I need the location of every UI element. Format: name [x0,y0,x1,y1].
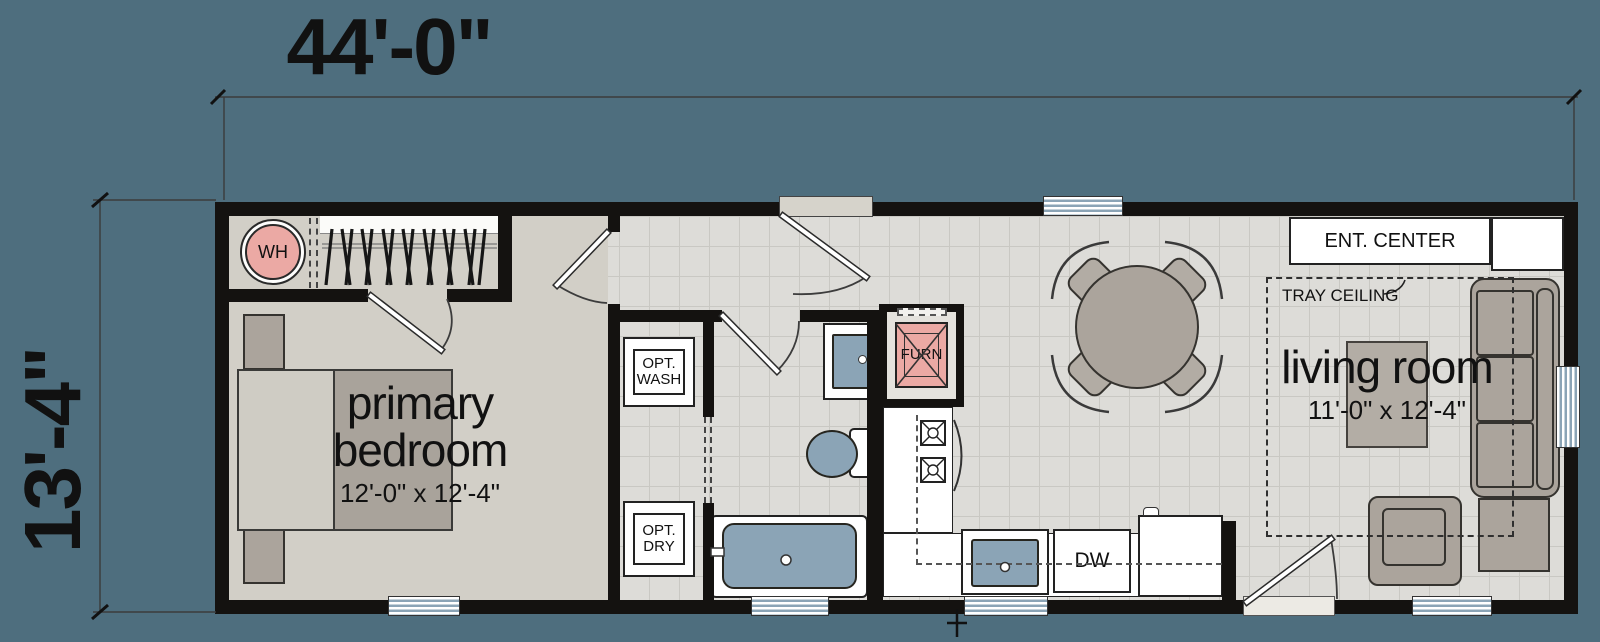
wall-bath-kitchen [867,310,883,600]
entertainment-center: ENT. CENTER [1289,217,1491,265]
window-top-dining [1043,196,1123,216]
ent-center-label: ENT. CENTER [1324,231,1455,252]
window-bottom-kitchen [964,596,1048,616]
upper-cabinet-dashed-line-vertical [916,415,918,565]
refrigerator-handle [1143,507,1159,516]
window-bottom-bedroom [388,596,460,616]
water-heater: WH [240,219,306,285]
opt-dry-line2: DRY [643,538,674,555]
living-room-name: living room [1262,344,1512,391]
sofa-back [1536,288,1554,490]
water-heater-closet-dashed-partition [309,218,311,288]
floor-plan-canvas: WH OPT.WASH OPT.DRY FURN DW [0,0,1600,642]
corner-cabinet [1491,217,1564,271]
laundry-closet-dashed-front [704,417,706,503]
primary-bedroom-label: primary bedroom 12'-0" x 12'-4" [300,380,540,509]
living-room-size: 11'-0" x 12'-4" [1262,395,1512,426]
vanity-knob [858,355,867,364]
optional-washer-label-box: OPT.WASH [633,349,685,395]
living-room-label: living room 11'-0" x 12'-4" [1262,344,1512,426]
nightstand [243,528,285,584]
water-heater-closet-dashed-partition-2 [316,218,318,288]
wall-closet-bottom-left [229,289,368,302]
optional-dryer-label-box: OPT.DRY [633,513,685,565]
dishwasher-label: DW [1075,550,1110,572]
wall-bedroom-stub [608,216,620,232]
window-bottom-living [1412,596,1492,616]
bathtub-basin [722,523,857,589]
window-right-living [1556,366,1580,448]
wall-closet-bottom-right [447,289,512,302]
wall-laundry-divider-upper [703,322,714,417]
wall-entry-stub [1222,521,1236,600]
front-door-alcove [779,196,873,217]
dimension-width-label: 44'-0" [234,2,544,92]
upper-cabinet-dashed-line-horizontal [916,563,1222,565]
closet-shelf [320,216,498,234]
tray-ceiling-label: TRAY CEILING [1282,286,1402,306]
toilet-bowl [806,430,858,478]
nightstand [243,314,285,370]
opt-dry-line1: OPT. [642,522,675,539]
window-bottom-bathroom [751,596,829,616]
dining-table [1075,265,1199,389]
wall-bedroom [608,304,620,600]
primary-bedroom-size: 12'-0" x 12'-4" [300,478,540,509]
water-heater-label: WH [242,221,304,283]
opt-wash-line1: OPT. [642,355,675,372]
furnace-label: FURN [893,322,950,388]
dimension-height-label: 13'-4" [10,300,96,600]
range-burner [920,420,946,446]
wall-laundry-top [608,310,722,322]
furnace-dashed-grille [897,308,947,316]
primary-bedroom-name-line2: bedroom [300,427,540,474]
range-burner [920,457,946,483]
primary-bedroom-name-line1: primary [300,380,540,427]
laundry-closet-dashed-front-2 [710,417,712,503]
entry-door-threshold [1243,596,1335,616]
wall-laundry-divider-lower [703,503,714,600]
refrigerator [1138,515,1223,597]
opt-wash-line2: WASH [637,371,681,388]
dishwasher: DW [1053,529,1131,593]
